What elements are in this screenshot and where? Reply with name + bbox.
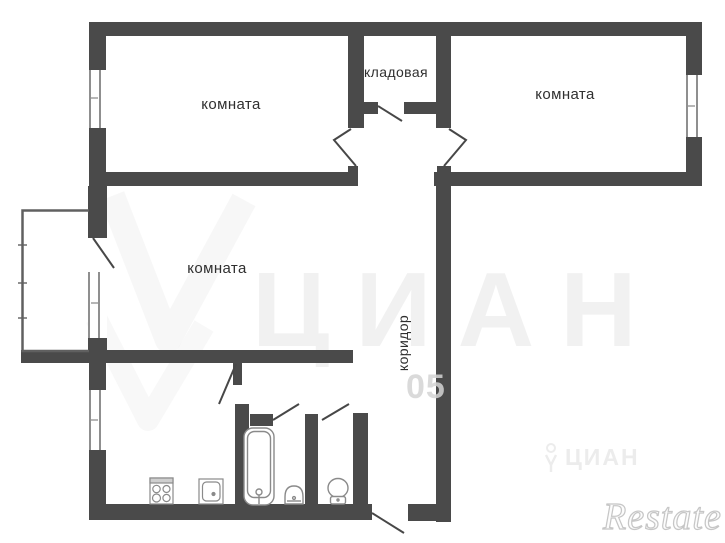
watermark-restate: Restate — [603, 495, 722, 539]
door-pantry-leaf — [378, 106, 402, 121]
stove — [150, 478, 173, 504]
door-toilet-leaf — [322, 404, 349, 420]
cian-bird-icon — [543, 441, 559, 473]
label-corridor: коридор — [395, 315, 411, 371]
door-room-top-left-leaf — [334, 129, 356, 166]
bathroom-sink — [285, 486, 303, 504]
toilet — [328, 479, 348, 505]
label-room-middle: комната — [167, 260, 267, 277]
door-balcony-leaf — [93, 238, 114, 268]
door-kitchen-leaf — [219, 364, 236, 404]
label-pantry: кладовая — [346, 64, 446, 80]
bathtub — [244, 428, 274, 505]
kitchen-sink — [199, 479, 223, 504]
door-bathroom-leaf — [273, 404, 299, 420]
watermark-digits: 05 — [406, 368, 446, 407]
label-room-top-right: комната — [515, 86, 615, 103]
watermark-cian-small-text: ЦИАН — [565, 444, 640, 471]
door-entrance-leaf — [372, 513, 404, 533]
door-room-top-right-leaf — [444, 129, 466, 166]
floor-plan: ЦИАН — [0, 0, 725, 543]
balcony-outline — [23, 211, 90, 352]
watermark-cian-small: ЦИАН — [543, 441, 640, 473]
label-room-top-left: комната — [181, 96, 281, 113]
